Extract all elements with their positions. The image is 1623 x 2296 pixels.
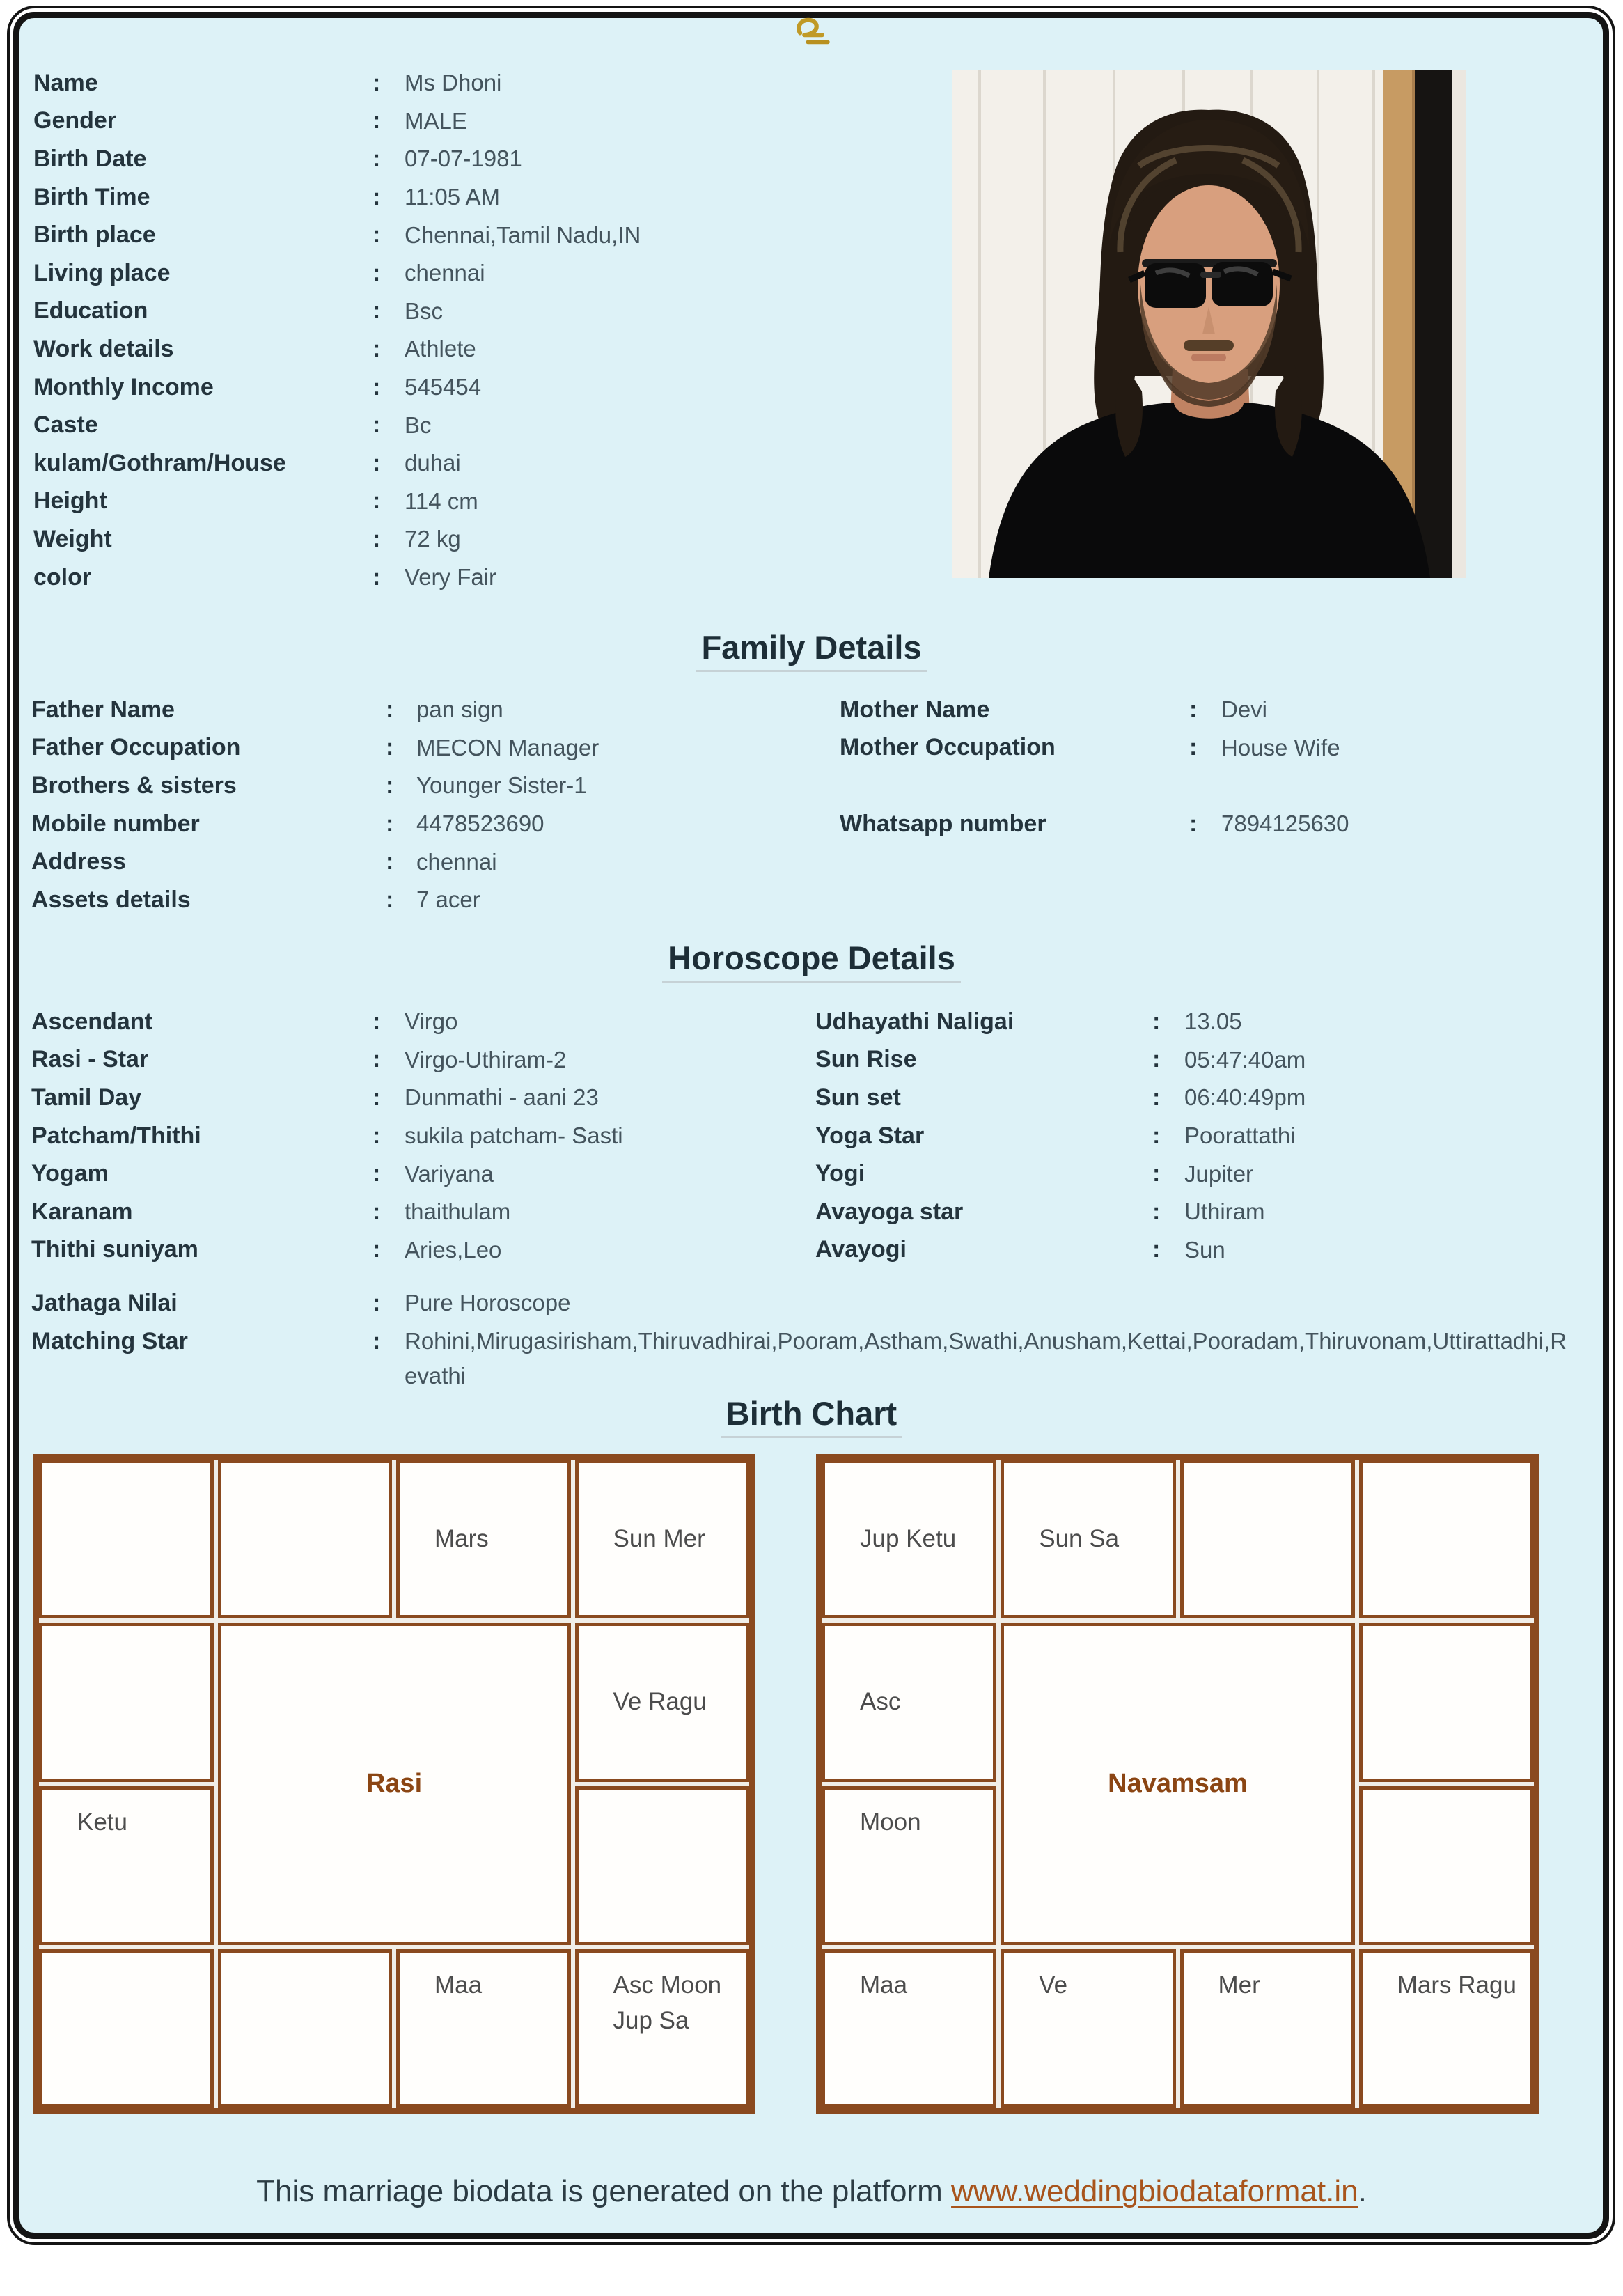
navamsam-cell-r3c4 xyxy=(1359,1786,1534,1945)
info-row: Udhayathi Naligai:13.05 xyxy=(815,1003,1616,1041)
colon: : xyxy=(373,1123,405,1150)
colon: : xyxy=(1152,1198,1184,1226)
colon: : xyxy=(373,450,405,477)
info-row: Thithi suniyam:Aries,Leo xyxy=(31,1231,822,1270)
info-row: Birth Time:11:05 AM xyxy=(33,178,939,217)
info-row: Sun set:06:40:49pm xyxy=(815,1079,1616,1117)
field-label: Name xyxy=(33,70,373,97)
pillaiyar-suzhi-icon xyxy=(793,17,832,47)
field-value: Sun xyxy=(1184,1237,1616,1263)
info-row: Caste:Bc xyxy=(33,406,939,444)
info-row: Rasi - Star:Virgo-Uthiram-2 xyxy=(31,1041,822,1079)
field-value: Virgo xyxy=(405,1008,822,1035)
field-value: pan sign xyxy=(416,696,822,723)
field-value: Bsc xyxy=(405,298,939,325)
field-label: Living place xyxy=(33,260,373,287)
colon: : xyxy=(1152,1236,1184,1263)
info-row: Yogam:Variyana xyxy=(31,1155,822,1193)
rasi-cell-r1c2 xyxy=(218,1460,393,1618)
rasi-cell-r2c4: Ve Ragu xyxy=(575,1623,750,1781)
colon: : xyxy=(373,1236,405,1263)
field-label: Udhayathi Naligai xyxy=(815,1008,1152,1036)
field-label: color xyxy=(33,564,373,591)
field-label: Father Occupation xyxy=(31,734,386,761)
rasi-cell-r4c3: Maa xyxy=(396,1949,571,2108)
field-value: Aries,Leo xyxy=(405,1237,822,1263)
colon: : xyxy=(373,1046,405,1073)
info-row: Jathaga Nilai:Pure Horoscope xyxy=(31,1286,1571,1324)
field-label: Jathaga Nilai xyxy=(31,1286,373,1321)
field-label: Birth Time xyxy=(33,184,373,211)
field-value: 13.05 xyxy=(1184,1008,1616,1035)
field-label: Whatsapp number xyxy=(840,811,1189,838)
info-row: Matching Star:Rohini,Mirugasirisham,Thir… xyxy=(31,1324,1571,1393)
field-label: Education xyxy=(33,297,373,325)
info-row: Avayogi:Sun xyxy=(815,1231,1616,1270)
info-row: Living place:chennai xyxy=(33,254,939,292)
field-label: Assets details xyxy=(31,887,386,914)
navamsam-chart-title: Navamsam xyxy=(1001,1623,1355,1945)
family-details-heading: Family Details xyxy=(0,628,1623,666)
biodata-page: Name:Ms Dhoni Gender:MALE Birth Date:07-… xyxy=(0,0,1623,2296)
info-row: Whatsapp number:7894125630 xyxy=(840,805,1613,843)
field-value: Devi xyxy=(1221,696,1613,723)
field-value: 545454 xyxy=(405,374,939,400)
field-value: Virgo-Uthiram-2 xyxy=(405,1047,822,1073)
navamsam-cell-r2c4 xyxy=(1359,1623,1534,1781)
colon: : xyxy=(373,374,405,401)
field-label: Yogam xyxy=(31,1160,373,1187)
colon: : xyxy=(373,1008,405,1036)
field-label: Weight xyxy=(33,526,373,553)
rasi-cell-r3c4 xyxy=(575,1786,750,1945)
info-row: Ascendant:Virgo xyxy=(31,1003,822,1041)
info-row: Monthly Income:545454 xyxy=(33,368,939,407)
field-label: Avayoga star xyxy=(815,1198,1152,1226)
info-row: Birth place:Chennai,Tamil Nadu,IN xyxy=(33,216,939,254)
field-value: MALE xyxy=(405,108,939,134)
family-details-right: Mother Name:Devi Mother Occupation:House… xyxy=(840,691,1613,843)
field-value: 114 cm xyxy=(405,488,939,515)
field-label: Caste xyxy=(33,412,373,439)
navamsam-cell-r4c3: Mer xyxy=(1180,1949,1355,2108)
field-label: Monthly Income xyxy=(33,374,373,401)
info-row: Mother Occupation:House Wife xyxy=(840,729,1613,767)
info-row: Education:Bsc xyxy=(33,292,939,331)
field-value: 06:40:49pm xyxy=(1184,1084,1616,1111)
navamsam-cell-r1c3 xyxy=(1180,1460,1355,1618)
colon: : xyxy=(373,221,405,249)
field-value: Dunmathi - aani 23 xyxy=(405,1084,822,1111)
profile-photo xyxy=(952,70,1466,578)
navamsam-cell-r4c1: Maa xyxy=(822,1949,996,2108)
spacer-row xyxy=(840,767,1613,805)
info-row: kulam/Gothram/House:duhai xyxy=(33,444,939,483)
info-row: Karanam:thaithulam xyxy=(31,1193,822,1231)
field-value: House Wife xyxy=(1221,735,1613,761)
rasi-cell-r3c1: Ketu xyxy=(39,1786,214,1945)
field-label: Address xyxy=(31,848,386,875)
info-row: Address:chennai xyxy=(31,843,822,881)
colon: : xyxy=(386,848,416,875)
info-row: Sun Rise:05:47:40am xyxy=(815,1041,1616,1079)
colon: : xyxy=(373,564,405,591)
colon: : xyxy=(373,336,405,363)
field-label: Mobile number xyxy=(31,811,386,838)
rasi-cell-r4c4: Asc Moon Jup Sa xyxy=(575,1949,750,2108)
field-label: Tamil Day xyxy=(31,1084,373,1111)
colon: : xyxy=(386,696,416,724)
horoscope-details-left: Ascendant:Virgo Rasi - Star:Virgo-Uthira… xyxy=(31,1003,822,1269)
field-label: Birth place xyxy=(33,221,373,249)
field-label: Avayogi xyxy=(815,1236,1152,1263)
rasi-cell-r4c2 xyxy=(218,1949,393,2108)
field-value: Athlete xyxy=(405,336,939,362)
colon: : xyxy=(386,772,416,799)
info-row: Father Occupation:MECON Manager xyxy=(31,729,822,767)
personal-details-section: Name:Ms Dhoni Gender:MALE Birth Date:07-… xyxy=(33,64,939,596)
footer-text: This marriage biodata is generated on th… xyxy=(256,2174,951,2208)
field-value: Bc xyxy=(405,412,939,439)
field-label: Rasi - Star xyxy=(31,1046,373,1073)
info-row: Gender:MALE xyxy=(33,102,939,141)
field-label: Yoga Star xyxy=(815,1123,1152,1150)
rasi-cell-r1c4: Sun Mer xyxy=(575,1460,750,1618)
info-row: color:Very Fair xyxy=(33,559,939,597)
field-label: Gender xyxy=(33,107,373,134)
navamsam-cell-r1c4 xyxy=(1359,1460,1534,1618)
field-value: sukila patcham- Sasti xyxy=(405,1123,822,1149)
info-row: Yogi:Jupiter xyxy=(815,1155,1616,1193)
colon: : xyxy=(373,1084,405,1111)
colon: : xyxy=(1152,1123,1184,1150)
colon: : xyxy=(1152,1046,1184,1073)
rasi-chart-title: Rasi xyxy=(218,1623,571,1945)
field-value: Younger Sister-1 xyxy=(416,772,822,799)
field-label: Brothers & sisters xyxy=(31,772,386,799)
field-value: Jupiter xyxy=(1184,1161,1616,1187)
footer: This marriage biodata is generated on th… xyxy=(0,2174,1623,2209)
field-label: Sun Rise xyxy=(815,1046,1152,1073)
navamsam-cell-r3c1: Moon xyxy=(822,1786,996,1945)
horoscope-extra-section: Jathaga Nilai:Pure Horoscope Matching St… xyxy=(31,1286,1571,1393)
horoscope-details-heading: Horoscope Details xyxy=(0,939,1623,977)
field-value: 7894125630 xyxy=(1221,811,1613,837)
family-details-left: Father Name:pan sign Father Occupation:M… xyxy=(31,691,822,919)
platform-link[interactable]: www.weddingbiodataformat.in xyxy=(951,2174,1358,2208)
info-row: Birth Date:07-07-1981 xyxy=(33,140,939,178)
colon: : xyxy=(1152,1084,1184,1111)
rasi-cell-r1c1 xyxy=(39,1460,214,1618)
colon: : xyxy=(386,734,416,761)
field-label: Work details xyxy=(33,336,373,363)
field-label: Matching Star xyxy=(31,1324,373,1359)
navamsam-cell-r1c2: Sun Sa xyxy=(1001,1460,1175,1618)
info-row: Mother Name:Devi xyxy=(840,691,1613,729)
info-row: Brothers & sisters:Younger Sister-1 xyxy=(31,767,822,805)
field-value: Very Fair xyxy=(405,564,939,591)
field-value: 7 acer xyxy=(416,887,822,913)
field-value: 07-07-1981 xyxy=(405,146,939,172)
navamsam-chart: Jup Ketu Sun Sa Asc Navamsam Moon Maa Ve… xyxy=(816,1454,1539,2114)
field-label: Karanam xyxy=(31,1198,373,1226)
navamsam-cell-r1c1: Jup Ketu xyxy=(822,1460,996,1618)
info-row: Assets details:7 acer xyxy=(31,881,822,919)
field-value: Poorattathi xyxy=(1184,1123,1616,1149)
field-value: Ms Dhoni xyxy=(405,70,939,96)
colon: : xyxy=(373,1324,405,1359)
field-label: Height xyxy=(33,487,373,515)
field-label: Sun set xyxy=(815,1084,1152,1111)
field-value: Variyana xyxy=(405,1161,822,1187)
field-label: Yogi xyxy=(815,1160,1152,1187)
navamsam-cell-r4c4: Mars Ragu xyxy=(1359,1949,1534,2108)
colon: : xyxy=(373,297,405,325)
colon: : xyxy=(1152,1160,1184,1187)
field-value: MECON Manager xyxy=(416,735,822,761)
birth-chart-heading: Birth Chart xyxy=(0,1394,1623,1432)
field-value: 4478523690 xyxy=(416,811,822,837)
field-label: Mother Occupation xyxy=(840,734,1189,761)
field-label: Patcham/Thithi xyxy=(31,1123,373,1150)
rasi-cell-r2c1 xyxy=(39,1623,214,1781)
colon: : xyxy=(1189,734,1221,761)
field-value: Rohini,Mirugasirisham,Thiruvadhirai,Poor… xyxy=(405,1324,1571,1393)
field-value: duhai xyxy=(405,450,939,476)
colon: : xyxy=(373,184,405,211)
rasi-cell-r1c3: Mars xyxy=(396,1460,571,1618)
colon: : xyxy=(373,107,405,134)
navamsam-cell-r2c1: Asc xyxy=(822,1623,996,1781)
navamsam-cell-r4c2: Ve xyxy=(1001,1949,1175,2108)
colon: : xyxy=(386,811,416,838)
info-row: Height:114 cm xyxy=(33,483,939,521)
info-row: Avayoga star:Uthiram xyxy=(815,1193,1616,1231)
rasi-cell-r4c1 xyxy=(39,1949,214,2108)
horoscope-details-right: Udhayathi Naligai:13.05 Sun Rise:05:47:4… xyxy=(815,1003,1616,1269)
field-value: 05:47:40am xyxy=(1184,1047,1616,1073)
colon: : xyxy=(373,1160,405,1187)
info-row: Name:Ms Dhoni xyxy=(33,64,939,102)
colon: : xyxy=(373,260,405,287)
info-row: Mobile number:4478523690 xyxy=(31,805,822,843)
field-value: 72 kg xyxy=(405,526,939,552)
field-label: Thithi suniyam xyxy=(31,1236,373,1263)
field-label: kulam/Gothram/House xyxy=(33,450,373,477)
info-row: Work details:Athlete xyxy=(33,330,939,368)
footer-period: . xyxy=(1358,2174,1367,2208)
colon: : xyxy=(373,487,405,515)
info-row: Yoga Star:Poorattathi xyxy=(815,1117,1616,1155)
colon: : xyxy=(373,146,405,173)
colon: : xyxy=(373,412,405,439)
field-label: Birth Date xyxy=(33,146,373,173)
field-label: Mother Name xyxy=(840,696,1189,724)
colon: : xyxy=(386,887,416,914)
colon: : xyxy=(373,526,405,553)
field-value: thaithulam xyxy=(405,1198,822,1225)
colon: : xyxy=(373,70,405,97)
field-value: Pure Horoscope xyxy=(405,1286,1571,1320)
colon: : xyxy=(1152,1008,1184,1036)
info-row: Patcham/Thithi:sukila patcham- Sasti xyxy=(31,1117,822,1155)
colon: : xyxy=(1189,811,1221,838)
field-value: 11:05 AM xyxy=(405,184,939,210)
colon: : xyxy=(373,1286,405,1321)
colon: : xyxy=(373,1198,405,1226)
colon: : xyxy=(1189,696,1221,724)
info-row: Weight:72 kg xyxy=(33,520,939,559)
info-row: Tamil Day:Dunmathi - aani 23 xyxy=(31,1079,822,1117)
field-label: Father Name xyxy=(31,696,386,724)
rasi-chart: Mars Sun Mer Rasi Ve Ragu Ketu Maa Asc M… xyxy=(33,1454,755,2114)
field-value: Chennai,Tamil Nadu,IN xyxy=(405,222,939,249)
info-row: Father Name:pan sign xyxy=(31,691,822,729)
field-value: chennai xyxy=(416,849,822,875)
field-value: Uthiram xyxy=(1184,1198,1616,1225)
field-label: Ascendant xyxy=(31,1008,373,1036)
field-value: chennai xyxy=(405,260,939,286)
